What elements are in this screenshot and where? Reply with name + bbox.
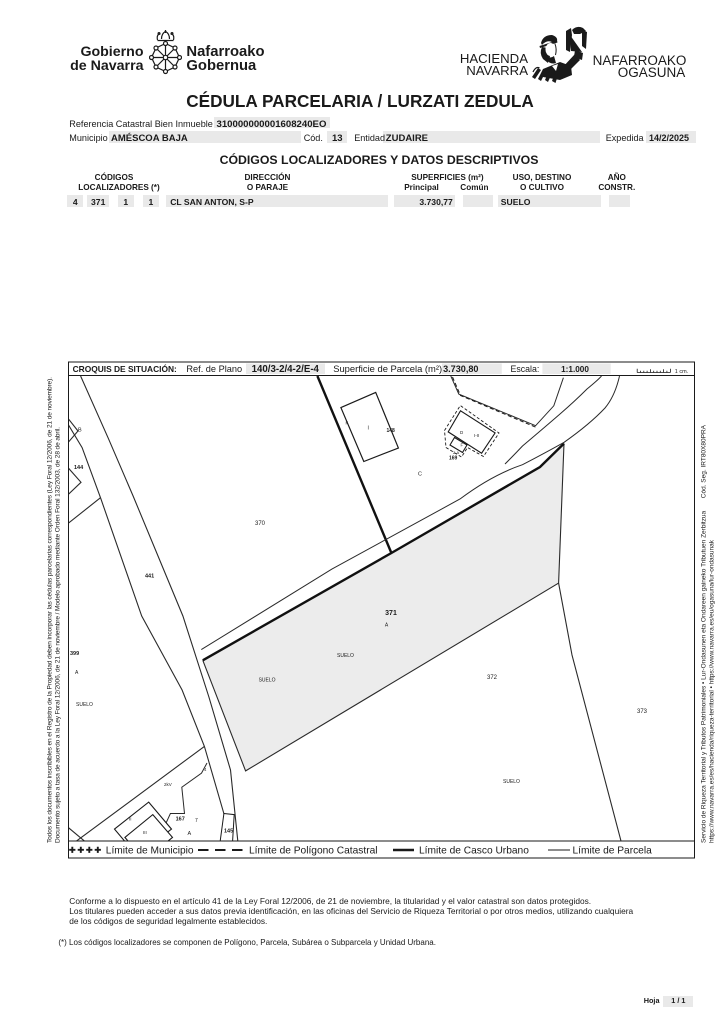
svg-text:1 cm.: 1 cm.: [675, 369, 689, 375]
svg-text:K: K: [346, 421, 349, 426]
svg-text:Superficie de Parcela (m²): Superficie de Parcela (m²): [333, 363, 442, 374]
svg-text:SUELO: SUELO: [503, 779, 520, 785]
svg-text:372: 372: [487, 675, 498, 681]
svg-text:Límite de Municipio: Límite de Municipio: [106, 846, 194, 857]
svg-text:SUELO: SUELO: [76, 702, 93, 708]
svg-text:167: 167: [176, 817, 185, 823]
svg-text:148: 148: [387, 428, 396, 434]
svg-text:7: 7: [195, 818, 198, 824]
svg-text:371: 371: [385, 610, 397, 617]
svg-text:399: 399: [70, 651, 79, 657]
svg-text:1:1.000: 1:1.000: [561, 365, 589, 374]
svg-text:Límite de Polígono Catastral: Límite de Polígono Catastral: [249, 846, 378, 857]
svg-text:A: A: [188, 831, 192, 837]
svg-text:Documento sujeto a tasa de acu: Documento sujeto a tasa de acuerdo a la …: [55, 427, 62, 843]
svg-text:F: F: [461, 443, 464, 448]
svg-text:2-A: 2-A: [453, 450, 460, 455]
svg-text:III: III: [143, 830, 147, 835]
svg-text:169: 169: [449, 456, 458, 462]
svg-text:144: 144: [74, 465, 84, 471]
svg-text:Servicio de Riqueza Territoria: Servicio de Riqueza Territorial y Tribut…: [701, 424, 708, 843]
svg-text:2kV: 2kV: [164, 782, 172, 787]
svg-text:140/3-2/4-2/E-4: 140/3-2/4-2/E-4: [252, 364, 320, 375]
svg-text:Límite de Casco Urbano: Límite de Casco Urbano: [419, 846, 529, 857]
svg-text:SUELO: SUELO: [337, 653, 354, 659]
svg-text:SUELO: SUELO: [259, 677, 276, 683]
svg-text:C: C: [418, 472, 422, 478]
svg-text:Escala:: Escala:: [511, 364, 540, 374]
svg-text:441: 441: [145, 574, 154, 580]
svg-text:II: II: [129, 817, 132, 822]
svg-text:Todos los documentos inscribib: Todos los documentos inscribibles en el …: [47, 377, 54, 843]
svg-text:I-II: I-II: [474, 433, 479, 438]
svg-text:370: 370: [255, 521, 266, 527]
svg-text:Ref. de Plano: Ref. de Plano: [186, 364, 242, 374]
svg-text:373: 373: [637, 709, 648, 715]
svg-text:https://www.navarra.es/es/haci: https://www.navarra.es/es/hacienda/rique…: [709, 539, 716, 843]
svg-text:145: 145: [224, 829, 233, 835]
svg-text:B: B: [78, 428, 82, 434]
svg-text:3.730,80: 3.730,80: [443, 364, 478, 374]
svg-text:CROQUIS DE SITUACIÓN:: CROQUIS DE SITUACIÓN:: [73, 363, 177, 374]
svg-text:Límite de Parcela: Límite de Parcela: [573, 846, 653, 857]
svg-text:I: I: [368, 426, 369, 432]
